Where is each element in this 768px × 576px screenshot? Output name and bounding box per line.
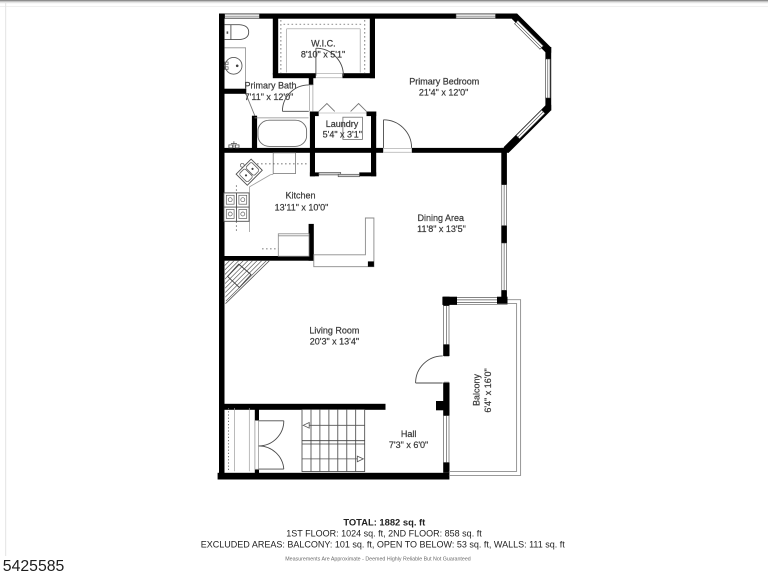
svg-text:Balcony: Balcony [472, 373, 482, 406]
svg-text:Hall: Hall [401, 429, 417, 439]
svg-text:EXCLUDED AREAS: BALCONY: 101 s: EXCLUDED AREAS: BALCONY: 101 sq. ft, OPE… [201, 540, 565, 550]
svg-text:21'4" x 12'0": 21'4" x 12'0" [419, 88, 468, 98]
svg-text:8'10" x 5'1": 8'10" x 5'1" [301, 50, 345, 60]
svg-text:1ST FLOOR: 1024 sq. ft, 2ND FL: 1ST FLOOR: 1024 sq. ft, 2ND FLOOR: 858 s… [286, 528, 482, 538]
svg-text:Laundry: Laundry [326, 119, 359, 129]
svg-text:Primary Bath: Primary Bath [244, 81, 296, 91]
svg-text:20'3" x 13'4": 20'3" x 13'4" [310, 336, 359, 346]
svg-text:5'4" x 3'1": 5'4" x 3'1" [323, 129, 362, 139]
svg-text:Measurements Are Approximate -: Measurements Are Approximate - Deemed Hi… [285, 557, 471, 563]
svg-text:Dining Area: Dining Area [418, 213, 465, 223]
svg-text:Living Room: Living Room [309, 325, 359, 335]
svg-text:7'11" x 12'0": 7'11" x 12'0" [245, 92, 294, 102]
svg-text:W.I.C.: W.I.C. [311, 38, 336, 48]
svg-text:Kitchen: Kitchen [285, 191, 315, 201]
svg-text:5425585: 5425585 [3, 558, 65, 575]
svg-text:6'4" x 16'0": 6'4" x 16'0" [483, 368, 493, 412]
svg-text:TOTAL: 1882 sq. ft: TOTAL: 1882 sq. ft [343, 516, 425, 527]
svg-text:7'3" x 6'0": 7'3" x 6'0" [389, 440, 428, 450]
svg-text:Primary Bedroom: Primary Bedroom [409, 77, 479, 87]
svg-text:13'11" x 10'0": 13'11" x 10'0" [275, 202, 329, 212]
svg-text:11'8" x 13'5": 11'8" x 13'5" [417, 224, 466, 234]
